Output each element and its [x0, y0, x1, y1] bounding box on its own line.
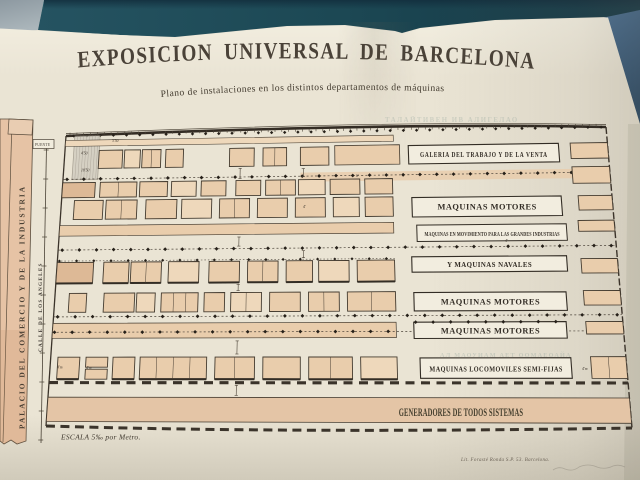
svg-text:4': 4': [303, 205, 306, 209]
svg-text:Y MAQUINAS NAVALES: Y MAQUINAS NAVALES: [447, 260, 532, 270]
svg-text:MAQUINAS MOTORES: MAQUINAS MOTORES: [441, 327, 540, 336]
svg-text:6': 6': [356, 174, 359, 178]
svg-text:MAQUINAS LOCOMOVILES SEMI-FIJA: MAQUINAS LOCOMOVILES SEMI-FIJAS: [429, 365, 562, 374]
svg-text:Lit. Forasté Ronda S.P. 53.: Lit. Forasté Ronda S.P. 53. Barcelona.: [460, 458, 550, 463]
svg-text:PALACIO DEL COMERCIO Y DE LA I: PALACIO DEL COMERCIO Y DE LA INDUSTRIA: [18, 185, 27, 429]
svg-text:18'50: 18'50: [81, 169, 90, 173]
svg-text:GALERIA DEL TRABAJO Y DE LA VE: GALERIA DEL TRABAJO Y DE LA VENTA: [420, 151, 548, 159]
svg-text:MAQUINAS MOTORES: MAQUINAS MOTORES: [441, 298, 540, 307]
svg-text:MAQUINAS EN MOVIMIENTO PARA LA: MAQUINAS EN MOVIMIENTO PARA LAS GRANDES …: [424, 232, 559, 239]
svg-text:4'50: 4'50: [81, 152, 88, 156]
svg-text:ESCALA 5‰ por Metro.: ESCALA 5‰ por Metro.: [60, 433, 141, 442]
svg-text:PUENTE: PUENTE: [35, 143, 51, 147]
svg-text:3'50: 3'50: [112, 139, 119, 143]
svg-text:GENERADORES DE TODOS SISTEMAS: GENERADORES DE TODOS SISTEMAS: [399, 406, 523, 420]
svg-text:4'm: 4'm: [86, 366, 92, 370]
svg-text:АЛ МАОУИАМ АЕТ ООМАЕОАЙА: АЛ МАОУИАМ АЕТ ООМАЕОАЙА: [440, 351, 572, 359]
svg-text:4'm: 4'm: [57, 366, 63, 370]
svg-text:ТАЛАЙТИВЕН ИВ АЛИГЕЛАО: ТАЛАЙТИВЕН ИВ АЛИГЕЛАО: [385, 116, 519, 124]
svg-text:4'm: 4'm: [582, 367, 588, 371]
svg-text:4': 4': [505, 239, 508, 243]
svg-text:MAQUINAS MOTORES: MAQUINAS MOTORES: [437, 203, 536, 212]
